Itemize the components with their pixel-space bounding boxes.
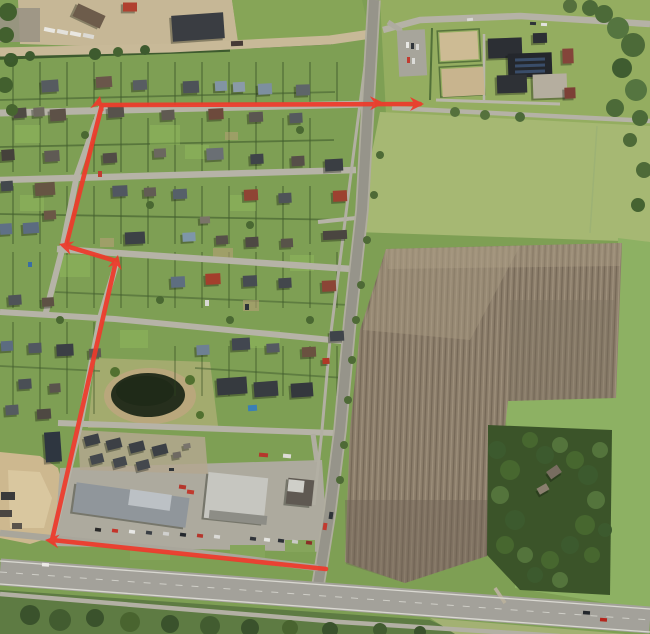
parked-car <box>112 529 118 533</box>
roadside-tree <box>336 476 344 484</box>
parked-car <box>163 532 169 536</box>
car-dark <box>583 611 590 615</box>
car-white <box>467 18 473 22</box>
lawn <box>150 125 180 145</box>
parked-car <box>306 541 312 545</box>
house <box>289 156 305 169</box>
roadside-tree <box>340 441 348 449</box>
house <box>230 338 251 353</box>
farm-barn <box>169 12 225 44</box>
parked-car <box>264 538 270 542</box>
car-white <box>541 23 547 26</box>
house <box>276 193 292 206</box>
house <box>194 345 210 358</box>
car-red <box>98 171 102 177</box>
house <box>6 295 22 308</box>
house <box>32 182 55 198</box>
playground-sand <box>439 31 478 61</box>
school-block <box>494 74 527 95</box>
house <box>159 110 175 123</box>
house-red <box>203 273 221 287</box>
dark-warehouse <box>42 431 62 464</box>
garden-tree <box>246 221 254 229</box>
woodlot-tree <box>566 451 584 469</box>
car-dark <box>245 304 249 310</box>
house <box>42 150 60 164</box>
garden-pool <box>248 405 257 412</box>
car-dark <box>530 22 536 25</box>
woodlot-tree <box>561 536 579 554</box>
roadside-tree <box>352 316 360 324</box>
car-dark <box>169 468 174 471</box>
scrub-tree <box>20 605 40 625</box>
woodlot-tree <box>491 486 509 504</box>
house <box>26 343 42 356</box>
farm-red-building <box>121 3 137 14</box>
hedge-tree <box>113 47 123 57</box>
school-block-concrete <box>530 73 567 100</box>
commercial-roof-section <box>287 479 304 493</box>
house-red <box>331 190 348 204</box>
house-red <box>320 280 337 294</box>
garden-patch <box>100 238 114 247</box>
house <box>171 189 188 202</box>
machinery <box>12 523 22 529</box>
woodlot-tree <box>527 567 543 583</box>
parked-car <box>250 537 256 541</box>
house <box>264 343 280 355</box>
school-block <box>531 33 548 45</box>
tree <box>606 99 624 117</box>
car-white <box>42 563 49 567</box>
house <box>20 222 39 236</box>
farm-truck <box>231 41 243 46</box>
garden-tree <box>226 316 234 324</box>
parked-car <box>278 539 284 543</box>
car-red <box>600 618 607 622</box>
hedge-tree <box>140 45 150 55</box>
woodlot-tree <box>496 536 514 554</box>
woodlot-tree <box>536 446 554 464</box>
tree <box>515 112 525 122</box>
garden-tree <box>146 201 154 209</box>
woodlot-tree <box>488 441 506 459</box>
scene-layers <box>0 0 650 634</box>
woodlot-tree <box>578 465 598 485</box>
white-van <box>283 454 291 459</box>
house <box>206 108 224 122</box>
house <box>105 106 124 120</box>
car-red <box>407 57 410 63</box>
house <box>131 80 148 93</box>
house <box>180 81 199 96</box>
house-red <box>242 189 259 203</box>
roadside-tree <box>376 151 384 159</box>
roadside-tree <box>348 356 356 364</box>
house <box>180 232 196 244</box>
woodlot-tree <box>552 572 568 588</box>
house <box>323 159 344 174</box>
house <box>93 76 112 90</box>
tree <box>612 58 632 78</box>
scrub-tree <box>161 615 179 633</box>
house <box>294 84 311 97</box>
woodlot-tree <box>592 442 608 458</box>
machinery <box>1 492 15 500</box>
parked-car <box>180 533 186 537</box>
parked-car <box>292 540 298 544</box>
parked-car <box>146 531 152 535</box>
bush <box>196 411 204 419</box>
tree <box>625 79 647 101</box>
parked-car <box>95 528 101 532</box>
house <box>47 108 66 123</box>
scrub-tree <box>86 609 104 627</box>
car-white <box>406 42 409 48</box>
car-white <box>205 300 209 306</box>
scrub-tree <box>49 609 71 631</box>
house <box>204 148 224 163</box>
house <box>110 185 128 199</box>
house <box>248 154 264 167</box>
house <box>300 347 317 360</box>
tree <box>6 104 18 116</box>
garden-tree <box>56 316 64 324</box>
bush <box>110 367 120 377</box>
car-blue <box>28 262 32 267</box>
field-dark-east <box>508 300 614 401</box>
parked-car <box>129 530 135 534</box>
bush <box>185 375 195 385</box>
house <box>328 331 345 344</box>
garden-tree <box>296 126 304 134</box>
woodlot-tree <box>500 460 520 480</box>
parked-car <box>214 535 220 539</box>
scrub-tree <box>120 612 140 632</box>
new-house <box>288 382 313 400</box>
parked-car <box>197 534 203 538</box>
house <box>100 153 117 166</box>
machinery <box>0 510 12 517</box>
tree <box>632 110 648 126</box>
house <box>287 113 303 126</box>
woodlot-tree <box>575 515 595 535</box>
house <box>34 409 51 422</box>
roadside-tree <box>357 281 365 289</box>
tree <box>623 133 637 147</box>
lawn <box>60 255 90 277</box>
house <box>3 405 19 418</box>
hedge-tree <box>5 53 15 63</box>
woodlot-tree <box>584 547 600 563</box>
house <box>256 83 273 97</box>
car-dark <box>411 43 414 49</box>
house <box>276 278 292 291</box>
red-truck <box>259 453 268 458</box>
lawn <box>120 330 148 348</box>
new-house <box>251 381 278 400</box>
woodlot-tree <box>522 432 538 448</box>
garden-tree <box>81 131 89 139</box>
house <box>16 379 32 392</box>
woodlot-tree <box>587 491 605 509</box>
tree <box>631 198 645 212</box>
house <box>321 230 348 242</box>
tree <box>621 33 645 57</box>
house <box>243 237 259 250</box>
house <box>39 79 59 94</box>
hedge-tree <box>89 48 101 60</box>
school-red-block <box>560 48 574 65</box>
meadow <box>356 112 650 242</box>
school-parking <box>397 29 427 76</box>
roadside-tree <box>344 396 352 404</box>
woodlot-tree <box>505 510 525 530</box>
car-white <box>412 58 415 64</box>
woodlot-tree <box>541 551 559 569</box>
garden-patch <box>225 132 238 140</box>
roadside-tree <box>363 236 371 244</box>
tree <box>480 110 490 120</box>
garden-tree <box>156 296 164 304</box>
house <box>54 344 74 359</box>
house <box>169 276 186 290</box>
garden-tree <box>306 316 314 324</box>
aerial-map <box>0 0 650 634</box>
lawn <box>15 125 40 143</box>
aerial-map-screenshot <box>0 0 650 634</box>
hedge-tree <box>25 51 35 61</box>
house <box>123 231 146 246</box>
roadside-tree <box>370 191 378 199</box>
woodlot-tree <box>598 523 612 537</box>
woodlot-tree <box>517 547 533 563</box>
house <box>241 275 258 289</box>
tree <box>450 107 460 117</box>
car-white <box>416 44 419 50</box>
playground-sand <box>441 67 484 97</box>
new-house <box>214 376 247 397</box>
woodlot-tree <box>552 437 568 453</box>
house <box>247 112 264 125</box>
